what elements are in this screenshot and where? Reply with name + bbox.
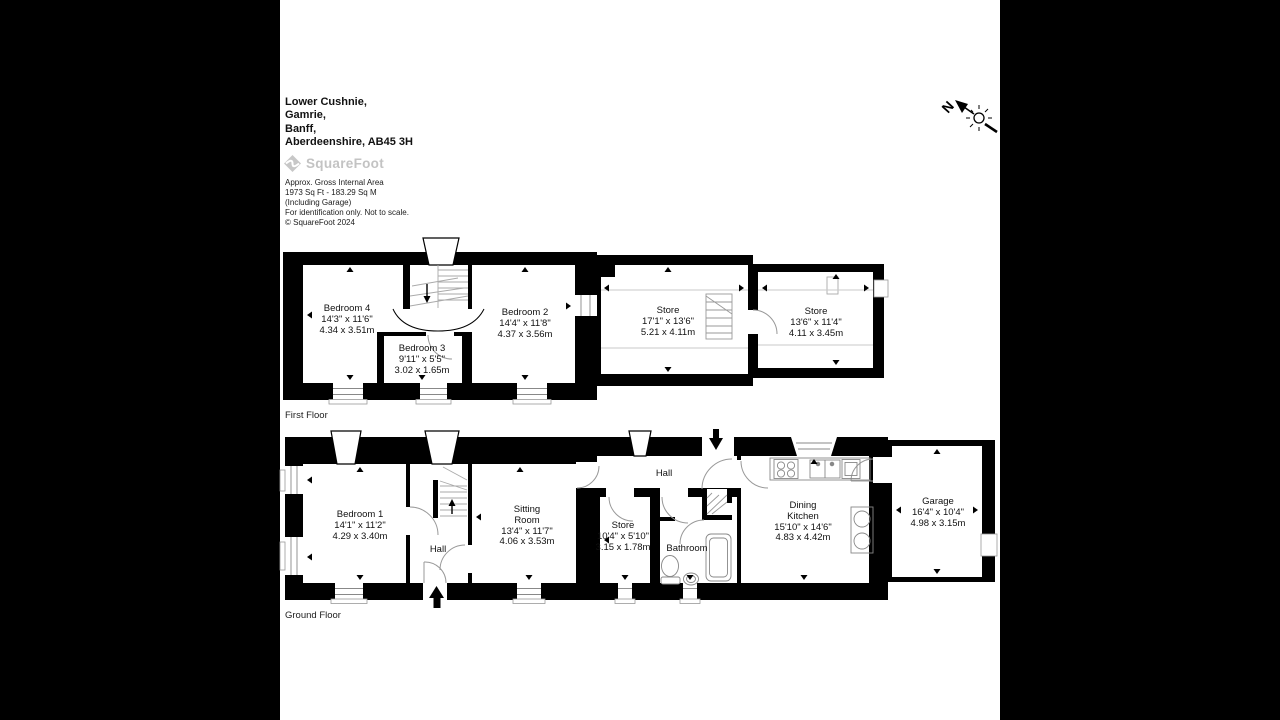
squarefoot-logo: SquareFoot <box>284 155 384 172</box>
area-summary: Approx. Gross Internal Area 1973 Sq Ft -… <box>285 178 409 228</box>
room-label-bedroom-2: Bedroom 2 14'4" x 11'8" 4.37 x 3.56m <box>498 308 553 340</box>
room-label-bedroom-1: Bedroom 1 14'1" x 11'2" 4.29 x 3.40m <box>333 510 388 542</box>
address-line: Gamrie, <box>285 109 413 122</box>
room-label-hall: Hall <box>430 545 446 556</box>
room-label-store-1: Store 17'1" x 13'6" 5.21 x 4.11m <box>641 306 695 338</box>
room-label-sitting-room: Sitting Room 13'4" x 11'7" 4.06 x 3.53m <box>500 505 555 548</box>
address-line: Lower Cushnie, <box>285 96 413 109</box>
squarefoot-logo-icon <box>284 155 301 172</box>
first-floor-label: First Floor <box>285 410 328 421</box>
room-label-bedroom-3: Bedroom 3 9'11" x 5'5" 3.02 x 1.65m <box>395 344 450 376</box>
area-line: © SquareFoot 2024 <box>285 218 409 228</box>
floor-plan-drawing: N <box>0 0 1280 720</box>
room-label-garage: Garage 16'4" x 10'4" 4.98 x 3.15m <box>911 497 966 529</box>
room-label-hall-2: Hall <box>656 469 672 480</box>
squarefoot-logo-text: SquareFoot <box>306 156 384 171</box>
floorplan-page: { "page": { "background_color": "#000000… <box>0 0 1280 720</box>
ground-floor-plan <box>280 429 997 608</box>
property-address: Lower Cushnie, Gamrie, Banff, Aberdeensh… <box>285 96 413 150</box>
address-line: Aberdeenshire, AB45 3H <box>285 136 413 149</box>
toilet-icon <box>662 556 679 577</box>
room-label-store-2: Store 13'6" x 11'4" 4.11 x 3.45m <box>789 307 843 339</box>
area-line: For identification only. Not to scale. <box>285 208 409 218</box>
room-label-store-ground: Store 10'4" x 5'10" 3.15 x 1.78m <box>596 521 651 553</box>
ground-floor-label: Ground Floor <box>285 610 341 621</box>
room-label-bedroom-4: Bedroom 4 14'3" x 11'6" 4.34 x 3.51m <box>320 304 375 336</box>
area-line: Approx. Gross Internal Area <box>285 178 409 188</box>
room-label-bathroom: Bathroom <box>666 544 707 555</box>
area-line: 1973 Sq Ft - 183.29 Sq M <box>285 188 409 198</box>
area-line: (Including Garage) <box>285 198 409 208</box>
loft-ladder-icon <box>706 294 732 339</box>
address-line: Banff, <box>285 123 413 136</box>
room-label-dining-kitchen: Dining Kitchen 15'10" x 14'6" 4.83 x 4.4… <box>774 501 831 544</box>
